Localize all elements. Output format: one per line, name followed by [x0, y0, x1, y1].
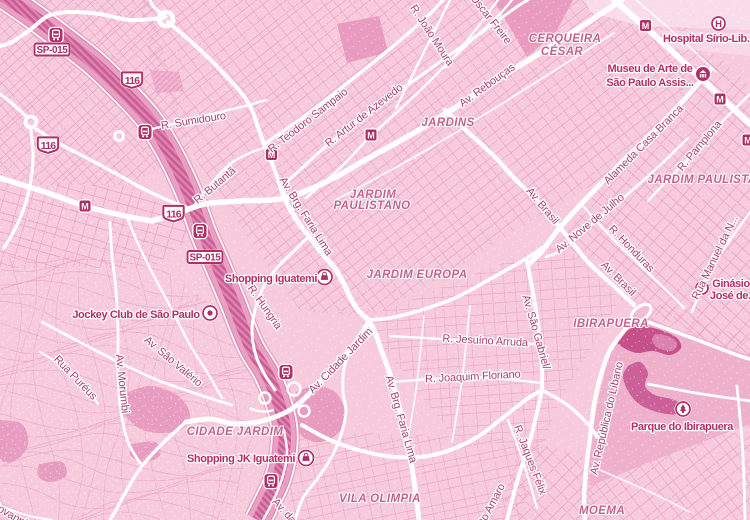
svg-text:Hospital Sírio-Lib...: Hospital Sírio-Lib...: [663, 33, 750, 45]
svg-text:José de...: José de...: [710, 290, 750, 302]
svg-text:Shopping JK Iguatemi: Shopping JK Iguatemi: [187, 453, 295, 465]
svg-text:PAULISTANO: PAULISTANO: [333, 200, 410, 212]
svg-text:SP-015: SP-015: [190, 253, 222, 264]
svg-text:M: M: [716, 94, 724, 104]
svg-text:MOEMA: MOEMA: [579, 505, 625, 517]
svg-text:M: M: [367, 130, 375, 140]
svg-text:Shopping Iguatemi: Shopping Iguatemi: [225, 273, 318, 285]
svg-text:Jockey Club de São Paulo: Jockey Club de São Paulo: [72, 309, 200, 321]
svg-text:M: M: [744, 135, 750, 145]
svg-text:SP-015: SP-015: [37, 45, 69, 56]
svg-text:CERQUEIRA: CERQUEIRA: [529, 33, 602, 45]
svg-text:H: H: [715, 19, 722, 30]
svg-text:CÉSAR: CÉSAR: [541, 45, 584, 58]
svg-text:M: M: [81, 201, 89, 211]
svg-text:JARDINS: JARDINS: [421, 117, 474, 129]
svg-text:JARDIM PAULISTA: JARDIM PAULISTA: [647, 174, 750, 186]
svg-text:Ginásio: Ginásio: [712, 278, 750, 290]
svg-text:M: M: [642, 21, 650, 31]
svg-text:Museu de Arte de: Museu de Arte de: [608, 63, 693, 75]
svg-text:IBIRAPUERA: IBIRAPUERA: [573, 318, 649, 330]
svg-text:Parque do Ibirapuera: Parque do Ibirapuera: [631, 421, 734, 433]
svg-text:116: 116: [125, 75, 140, 87]
svg-text:JARDIM EUROPA: JARDIM EUROPA: [367, 269, 468, 281]
svg-text:VILA OLIMPIA: VILA OLIMPIA: [339, 493, 421, 505]
svg-text:São Paulo Assis...: São Paulo Assis...: [606, 77, 693, 89]
svg-text:116: 116: [166, 208, 181, 220]
svg-text:CIDADE JARDIM: CIDADE JARDIM: [187, 426, 284, 438]
svg-text:116: 116: [41, 140, 56, 152]
